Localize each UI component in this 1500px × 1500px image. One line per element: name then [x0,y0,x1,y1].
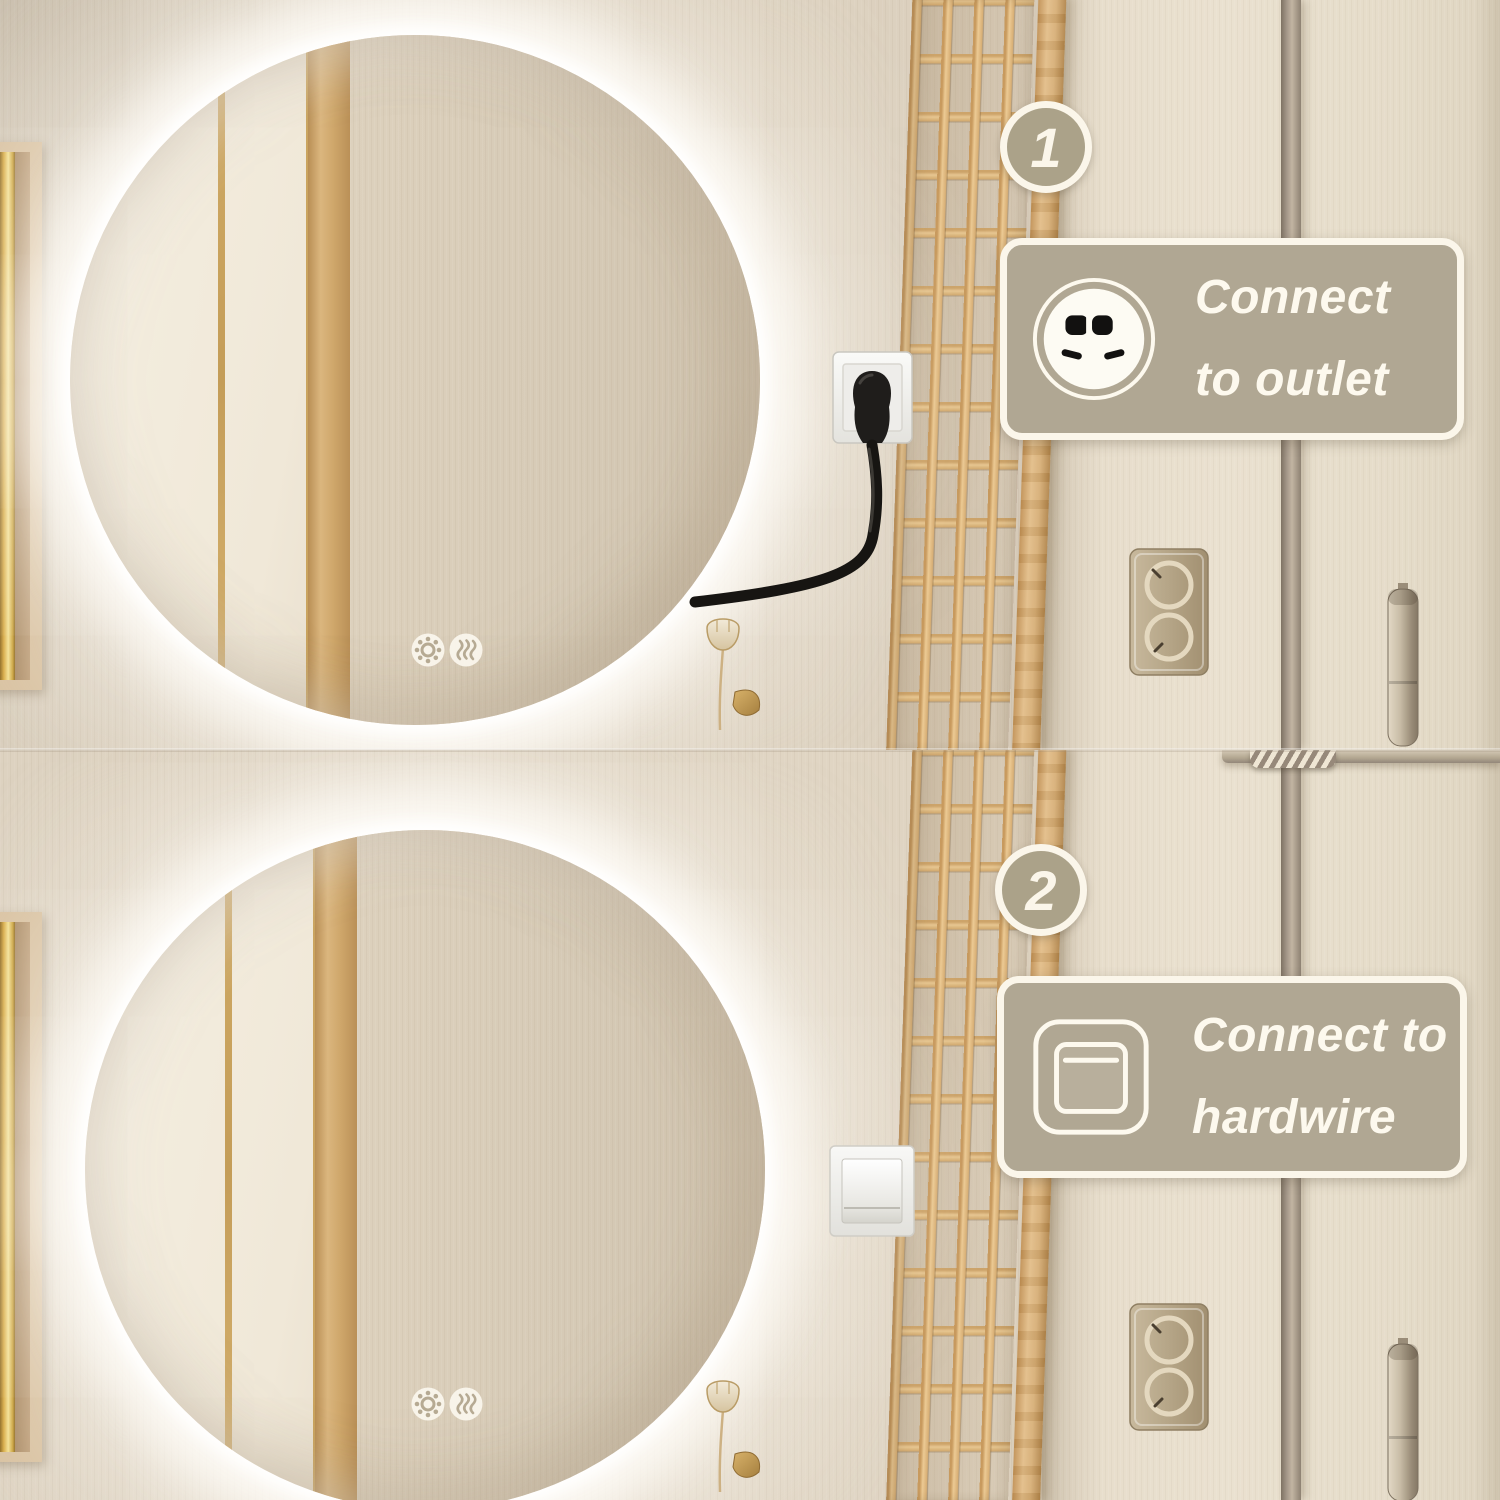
black-plug [853,371,891,443]
step-1-badge: 1 [1000,101,1092,193]
step-2-badge: 2 [995,844,1087,936]
step-1-line1: Connect [1195,257,1391,339]
step-2-number: 2 [1025,858,1056,923]
panel-connect-to-outlet: 1 Connect to outlet [0,0,1500,750]
light-button-icon [412,1388,445,1421]
outlet-icon [1029,274,1159,404]
dried-flower-decor [693,1374,763,1496]
mirror-touch-buttons [407,628,487,672]
light-button-icon [412,634,445,667]
wall-outlet-with-plug [655,345,935,635]
shower-mixer-panel [1126,1300,1212,1434]
step-2-label: Connect to hardwire [997,976,1467,1178]
step-1-number: 1 [1030,115,1061,180]
framed-art [0,912,42,1462]
panel-connect-to-hardwire: 2 Connect to hardwire [0,750,1500,1500]
framed-art-mat [15,152,30,680]
hand-shower-wand [1386,1338,1420,1500]
step-2-line2: hardwire [1192,1077,1448,1159]
step-1-line2: to outlet [1195,339,1391,421]
slatted-soap-dish [1250,750,1336,768]
step-2-line1: Connect to [1192,995,1448,1077]
step-1-label: Connect to outlet [1000,238,1464,440]
panel-divider [0,748,1500,752]
wall-light-switch [828,1144,916,1238]
mirror-touch-buttons [407,1382,487,1426]
hand-shower-wand [1386,583,1420,748]
framed-art [0,142,42,690]
hardwire-switch-icon [1026,1012,1156,1142]
defog-button-icon [450,634,483,667]
framed-art-gold-strip [0,152,15,680]
framed-art-mat [15,922,30,1452]
step-1-text: Connect to outlet [1195,257,1391,421]
shower-mixer-panel [1126,545,1212,679]
power-cable [695,445,877,602]
product-infographic: 1 Connect to outlet [0,0,1500,1500]
framed-art-gold-strip [0,922,15,1452]
step-2-text: Connect to hardwire [1192,995,1448,1159]
defog-button-icon [450,1388,483,1421]
